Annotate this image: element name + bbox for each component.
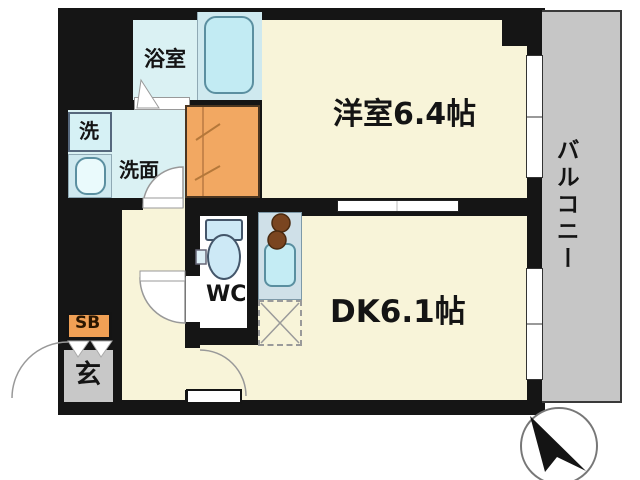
closet-divider	[202, 107, 204, 196]
bath-door	[134, 97, 190, 110]
bathtub	[204, 16, 254, 94]
vanity-label: 洗面	[119, 160, 159, 181]
fridge-space	[258, 300, 302, 346]
window-dk	[526, 268, 543, 380]
western-room-label: 洋室6.4帖	[333, 99, 476, 131]
entrance-label: 玄	[75, 362, 101, 389]
dk-label: DK6.1帖	[330, 296, 466, 329]
hallway-floor	[122, 210, 185, 400]
dk-door-opening	[185, 348, 200, 390]
window-sash-divider	[527, 116, 542, 118]
window-western-room	[526, 55, 543, 178]
partition-sliding-door	[337, 200, 459, 212]
closet	[185, 105, 260, 198]
shoe-box-label: SB	[75, 315, 100, 333]
bathroom-label: 浴室	[144, 48, 186, 70]
compass-icon	[530, 416, 586, 472]
wc-door-opening	[186, 276, 200, 322]
floorplan-canvas: バルコニー 浴室 洗 洗面 洋室6.4帖 DK6.1帖 WC 玄 SB	[0, 0, 640, 480]
dk-door-leaf	[186, 389, 242, 404]
vanity-sink	[75, 157, 106, 195]
kitchen-sink	[264, 243, 296, 287]
wc-floor	[200, 216, 247, 328]
washing-machine-label: 洗	[79, 121, 99, 142]
wc-east-wall	[247, 210, 258, 345]
corner-pillar	[502, 8, 542, 46]
window-sash-divider	[527, 323, 542, 325]
compass-circle	[521, 408, 597, 480]
wc-label: WC	[206, 283, 246, 306]
balcony-label: バルコニー	[553, 138, 577, 273]
